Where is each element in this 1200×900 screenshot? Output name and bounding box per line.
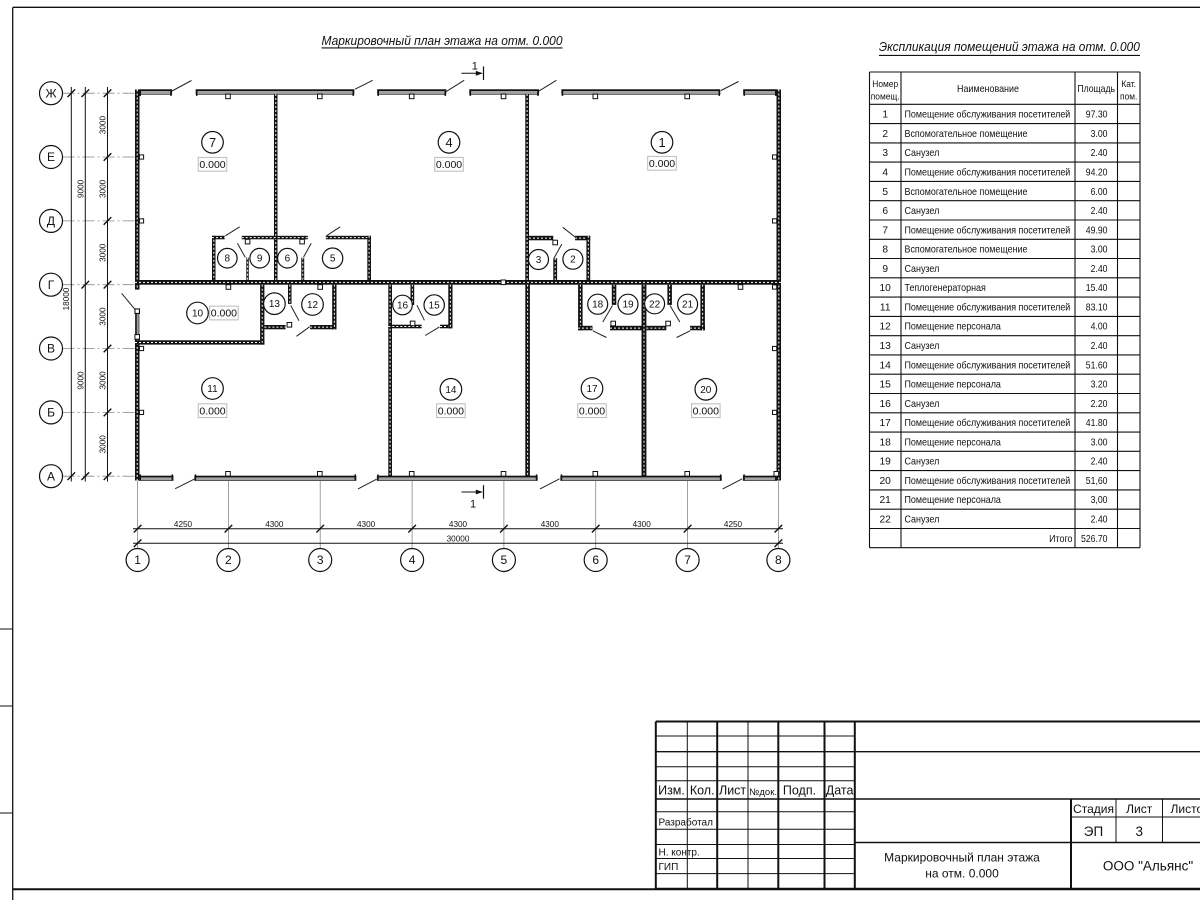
svg-text:17: 17 xyxy=(586,384,598,395)
svg-text:0.000: 0.000 xyxy=(211,308,237,320)
svg-text:7: 7 xyxy=(684,553,691,567)
svg-text:2.40: 2.40 xyxy=(1091,515,1108,526)
svg-text:4300: 4300 xyxy=(633,520,652,529)
svg-text:Помещение обслуживания посетит: Помещение обслуживания посетителей xyxy=(905,109,1071,121)
svg-text:18: 18 xyxy=(592,300,604,311)
svg-text:4: 4 xyxy=(445,135,452,150)
svg-text:Помещение персонала: Помещение персонала xyxy=(905,495,1002,506)
svg-text:3: 3 xyxy=(536,255,542,266)
svg-text:3.00: 3.00 xyxy=(1091,129,1108,140)
svg-text:16: 16 xyxy=(880,399,892,410)
svg-text:21: 21 xyxy=(682,300,694,311)
svg-text:Маркировочный план этажа: Маркировочный план этажа xyxy=(884,851,1040,865)
svg-text:9: 9 xyxy=(882,264,888,275)
svg-text:Итого: Итого xyxy=(1049,534,1073,545)
svg-text:ООО "Альянс": ООО "Альянс" xyxy=(1103,859,1193,874)
svg-text:Вспомогательное помещение: Вспомогательное помещение xyxy=(905,245,1028,256)
svg-text:Кат.: Кат. xyxy=(1121,79,1136,90)
svg-text:Помещение обслуживания посетит: Помещение обслуживания посетителей xyxy=(905,301,1071,313)
svg-text:3: 3 xyxy=(317,553,324,567)
svg-text:Санузел: Санузел xyxy=(905,341,940,352)
svg-text:6.00: 6.00 xyxy=(1091,187,1108,198)
svg-text:22: 22 xyxy=(649,299,661,310)
svg-text:Вспомогательное помещение: Вспомогательное помещение xyxy=(905,129,1028,140)
svg-text:ГИП: ГИП xyxy=(659,862,679,873)
svg-text:2: 2 xyxy=(882,129,888,140)
svg-text:13: 13 xyxy=(269,299,281,310)
svg-text:11: 11 xyxy=(207,384,218,395)
svg-text:4: 4 xyxy=(409,553,416,567)
svg-text:6: 6 xyxy=(592,553,599,567)
svg-text:Н. контр.: Н. контр. xyxy=(659,848,700,859)
svg-text:Помещение обслуживания посетит: Помещение обслуживания посетителей xyxy=(905,224,1071,236)
svg-text:4250: 4250 xyxy=(724,520,743,529)
svg-text:14: 14 xyxy=(445,385,457,396)
svg-text:№док.: №док. xyxy=(749,787,777,798)
svg-text:15: 15 xyxy=(880,380,892,391)
svg-text:2: 2 xyxy=(225,553,232,567)
svg-text:0.000: 0.000 xyxy=(579,405,605,417)
svg-text:13: 13 xyxy=(880,341,892,352)
svg-text:Б: Б xyxy=(47,406,55,420)
svg-text:0.000: 0.000 xyxy=(436,159,462,171)
svg-text:Изм.: Изм. xyxy=(658,784,685,798)
svg-text:3000: 3000 xyxy=(98,179,107,198)
svg-text:2.40: 2.40 xyxy=(1091,206,1108,217)
svg-text:Лист: Лист xyxy=(719,784,746,798)
svg-text:0.000: 0.000 xyxy=(199,159,225,171)
svg-text:1: 1 xyxy=(658,135,665,150)
svg-text:0.000: 0.000 xyxy=(649,158,675,170)
svg-text:Экспликация помещений этажа на: Экспликация помещений этажа на отм. 0.00… xyxy=(879,39,1141,54)
svg-text:Санузел: Санузел xyxy=(905,457,940,468)
svg-text:51.60: 51.60 xyxy=(1086,360,1108,371)
svg-text:5: 5 xyxy=(882,187,888,198)
svg-text:Номер: Номер xyxy=(872,79,898,90)
svg-text:30000: 30000 xyxy=(447,535,470,544)
svg-text:49.90: 49.90 xyxy=(1086,225,1108,236)
svg-text:526.70: 526.70 xyxy=(1081,534,1108,545)
svg-text:3: 3 xyxy=(882,148,888,159)
svg-text:Е: Е xyxy=(47,150,55,164)
svg-text:Дата: Дата xyxy=(826,784,854,798)
svg-text:6: 6 xyxy=(882,206,888,217)
svg-text:9: 9 xyxy=(257,254,263,265)
svg-text:8: 8 xyxy=(775,553,782,567)
svg-text:18000: 18000 xyxy=(62,287,71,310)
svg-text:20: 20 xyxy=(880,476,892,487)
svg-text:19: 19 xyxy=(622,300,634,311)
svg-text:0.000: 0.000 xyxy=(438,405,464,417)
svg-text:3000: 3000 xyxy=(98,307,107,326)
svg-text:8: 8 xyxy=(882,245,888,256)
svg-text:3000: 3000 xyxy=(98,243,107,262)
svg-text:Санузел: Санузел xyxy=(905,206,940,217)
svg-text:21: 21 xyxy=(880,495,892,506)
svg-text:Маркировочный план этажа на от: Маркировочный план этажа на отм. 0.000 xyxy=(322,33,564,48)
svg-text:3000: 3000 xyxy=(98,371,107,390)
svg-text:2.40: 2.40 xyxy=(1091,264,1108,275)
svg-text:Санузел: Санузел xyxy=(905,148,940,159)
svg-text:8: 8 xyxy=(225,254,231,265)
svg-text:4250: 4250 xyxy=(174,520,193,529)
svg-text:15: 15 xyxy=(429,301,441,312)
svg-text:Кол.: Кол. xyxy=(690,784,715,798)
svg-text:1: 1 xyxy=(882,110,888,121)
svg-text:17: 17 xyxy=(880,418,892,429)
svg-text:5: 5 xyxy=(330,254,336,265)
svg-text:Листов: Листов xyxy=(1171,802,1200,816)
svg-text:Санузел: Санузел xyxy=(905,515,940,526)
svg-text:3.20: 3.20 xyxy=(1091,380,1108,391)
svg-text:6: 6 xyxy=(285,254,291,265)
svg-text:51,60: 51,60 xyxy=(1086,476,1108,487)
svg-text:3.00: 3.00 xyxy=(1091,437,1108,448)
svg-text:Помещение обслуживания посетит: Помещение обслуживания посетителей xyxy=(905,359,1071,371)
svg-text:10: 10 xyxy=(192,309,204,320)
svg-text:20: 20 xyxy=(700,385,712,396)
svg-text:3000: 3000 xyxy=(98,435,107,454)
svg-text:7: 7 xyxy=(209,135,216,150)
svg-text:2.40: 2.40 xyxy=(1091,341,1108,352)
svg-text:7: 7 xyxy=(882,225,888,236)
svg-text:97.30: 97.30 xyxy=(1086,110,1108,121)
svg-text:10: 10 xyxy=(880,283,892,294)
svg-text:18: 18 xyxy=(880,437,892,448)
svg-text:1: 1 xyxy=(472,60,478,72)
svg-text:Теплогенераторная: Теплогенераторная xyxy=(905,283,986,294)
svg-text:Помещение обслуживания посетит: Помещение обслуживания посетителей xyxy=(905,417,1071,429)
svg-text:4300: 4300 xyxy=(449,520,468,529)
svg-text:Санузел: Санузел xyxy=(905,399,940,410)
svg-text:Лист: Лист xyxy=(1126,802,1153,816)
svg-text:4: 4 xyxy=(882,168,888,179)
svg-text:Санузел: Санузел xyxy=(905,264,940,275)
svg-text:ЭП: ЭП xyxy=(1084,824,1103,839)
svg-text:22: 22 xyxy=(880,515,892,526)
svg-text:9000: 9000 xyxy=(76,179,85,198)
svg-text:2.40: 2.40 xyxy=(1091,148,1108,159)
svg-text:Помещение обслуживания посетит: Помещение обслуживания посетителей xyxy=(905,167,1071,179)
svg-text:Вспомогательное помещение: Вспомогательное помещение xyxy=(905,187,1028,198)
svg-text:Помещение персонала: Помещение персонала xyxy=(905,380,1002,391)
svg-text:Д: Д xyxy=(47,214,55,228)
svg-text:4.00: 4.00 xyxy=(1091,322,1108,333)
svg-text:Площадь: Площадь xyxy=(1077,84,1115,95)
svg-text:0.000: 0.000 xyxy=(199,405,225,417)
svg-text:помещ.: помещ. xyxy=(871,92,900,103)
svg-text:Помещение персонала: Помещение персонала xyxy=(905,437,1002,448)
svg-text:1: 1 xyxy=(470,499,476,511)
svg-text:Подп.: Подп. xyxy=(783,784,816,798)
svg-text:9000: 9000 xyxy=(76,371,85,390)
svg-text:12: 12 xyxy=(307,300,319,311)
svg-text:Г: Г xyxy=(48,278,55,292)
svg-text:12: 12 xyxy=(880,322,892,333)
svg-text:0.000: 0.000 xyxy=(693,405,719,417)
svg-text:4300: 4300 xyxy=(541,520,560,529)
svg-text:15.40: 15.40 xyxy=(1086,283,1108,294)
svg-text:11: 11 xyxy=(880,302,891,313)
svg-text:1: 1 xyxy=(134,553,141,567)
svg-text:на отм. 0.000: на отм. 0.000 xyxy=(925,867,999,881)
svg-text:2.40: 2.40 xyxy=(1091,457,1108,468)
svg-text:пом.: пом. xyxy=(1120,92,1137,103)
svg-text:В: В xyxy=(47,342,55,356)
svg-text:4300: 4300 xyxy=(357,520,376,529)
svg-text:16: 16 xyxy=(397,301,409,312)
svg-text:19: 19 xyxy=(880,457,892,468)
svg-text:4300: 4300 xyxy=(265,520,284,529)
svg-text:83.10: 83.10 xyxy=(1086,302,1108,313)
svg-text:3000: 3000 xyxy=(98,116,107,135)
svg-text:14: 14 xyxy=(880,360,892,371)
svg-text:2: 2 xyxy=(570,255,576,266)
svg-text:Наименование: Наименование xyxy=(957,84,1019,95)
svg-text:3,00: 3,00 xyxy=(1091,495,1108,506)
svg-text:41.80: 41.80 xyxy=(1086,418,1108,429)
svg-text:3.00: 3.00 xyxy=(1091,245,1108,256)
svg-text:Разработал: Разработал xyxy=(659,817,714,829)
svg-text:Стадия: Стадия xyxy=(1073,802,1114,816)
svg-text:Помещение обслуживания посетит: Помещение обслуживания посетителей xyxy=(905,475,1071,487)
svg-text:А: А xyxy=(47,469,55,483)
svg-text:94.20: 94.20 xyxy=(1086,168,1108,179)
svg-text:3: 3 xyxy=(1135,824,1143,839)
svg-text:5: 5 xyxy=(501,553,508,567)
svg-text:Ж: Ж xyxy=(45,86,56,100)
svg-text:2.20: 2.20 xyxy=(1091,399,1108,410)
svg-text:Помещение персонала: Помещение персонала xyxy=(905,322,1002,333)
